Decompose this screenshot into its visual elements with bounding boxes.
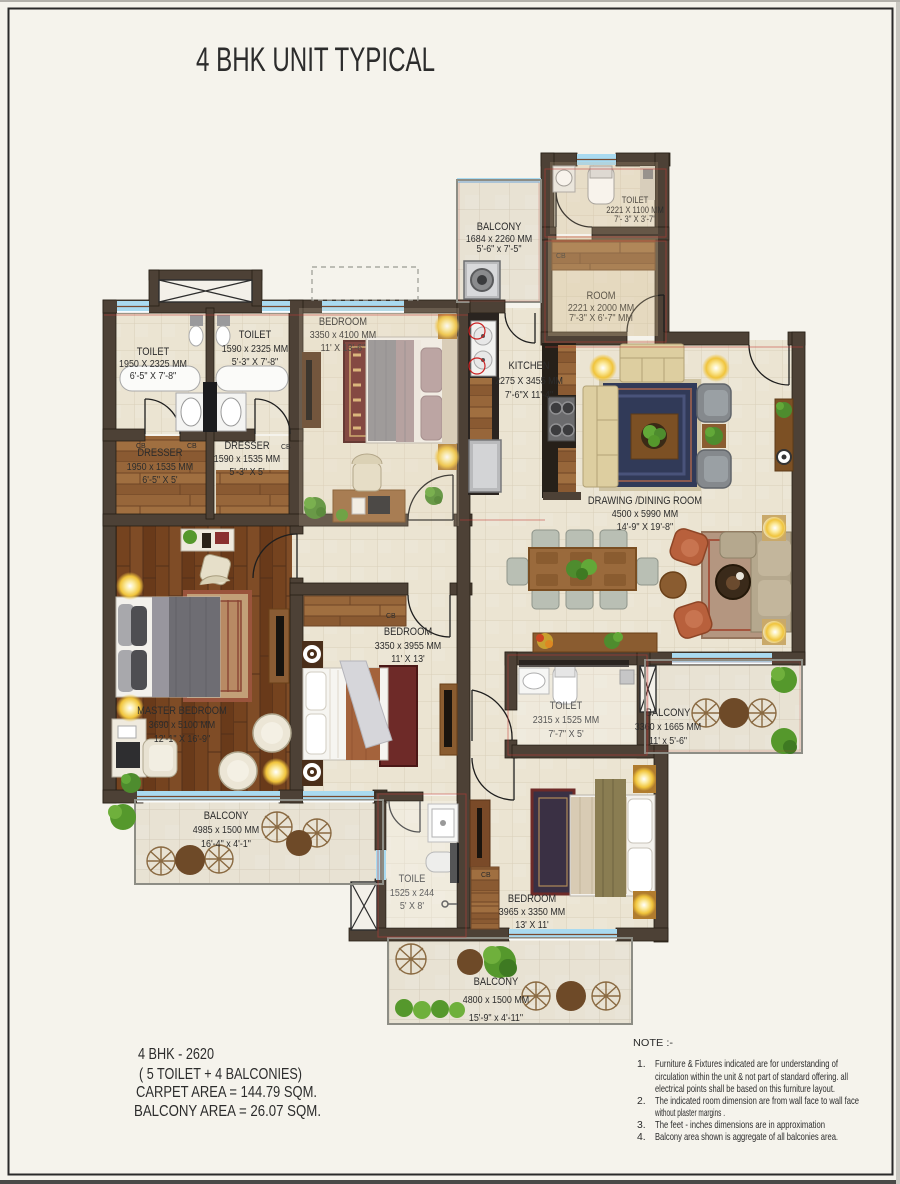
svg-text:The feet - inches dimensions a: The feet - inches dimensions are in appr… [655, 1120, 825, 1131]
svg-text:5'-3" X 7'-8": 5'-3" X 7'-8" [232, 356, 279, 368]
svg-text:14'-9" X 19'-8": 14'-9" X 19'-8" [617, 521, 674, 533]
svg-text:2275 X 3455 MM: 2275 X 3455 MM [495, 375, 563, 387]
svg-text:5'-6" x 7'-5": 5'-6" x 7'-5" [477, 243, 522, 255]
svg-text:4985 x 1500 MM: 4985 x 1500 MM [193, 824, 259, 836]
svg-text:2.: 2. [637, 1096, 646, 1107]
svg-text:1590 x 1535 MM: 1590 x 1535 MM [214, 453, 280, 465]
svg-text:CB: CB [136, 443, 146, 450]
svg-text:16'-4" x 4'-1": 16'-4" x 4'-1" [201, 838, 251, 850]
svg-text:1950 X 2325 MM: 1950 X 2325 MM [119, 358, 187, 370]
svg-text:1.: 1. [637, 1059, 646, 1070]
svg-text:BEDROOM: BEDROOM [384, 626, 432, 638]
svg-text:BALCONY: BALCONY [474, 976, 519, 988]
svg-text:TOILET: TOILET [137, 346, 170, 358]
svg-text:15'-9" x 4'-11": 15'-9" x 4'-11" [469, 1012, 524, 1024]
svg-text:4 BHK UNIT TYPICAL: 4 BHK UNIT TYPICAL [196, 41, 435, 79]
svg-text:Balcony area shown is aggregat: Balcony area shown is aggregate of all b… [655, 1132, 838, 1143]
svg-text:1950 x 1535 MM: 1950 x 1535 MM [127, 461, 193, 473]
svg-text:4500 x 5990 MM: 4500 x 5990 MM [612, 508, 678, 520]
svg-text:CB: CB [386, 613, 396, 620]
svg-text:1590 x 2325 MM: 1590 x 2325 MM [222, 343, 288, 355]
svg-text:CARPET AREA = 144.79 SQM.: CARPET AREA = 144.79 SQM. [136, 1084, 317, 1101]
svg-text:Furniture & Fixtures indicate: Furniture & Fixtures indicated are for u… [655, 1059, 838, 1070]
svg-text:NOTE :-: NOTE :- [633, 1038, 673, 1049]
svg-text:3.: 3. [637, 1120, 646, 1131]
svg-text:The indicated room dimension a: The indicated room dimension are from wa… [655, 1096, 859, 1107]
svg-text:BALCONY: BALCONY [204, 810, 249, 822]
svg-text:3350 x 3955 MM: 3350 x 3955 MM [375, 640, 441, 652]
svg-text:MASTER BEDROOM: MASTER BEDROOM [137, 705, 227, 717]
svg-text:CB: CB [481, 872, 491, 879]
svg-text:6'-5" X 5': 6'-5" X 5' [142, 474, 177, 486]
svg-text:6'-5" X 7'-8": 6'-5" X 7'-8" [130, 370, 177, 382]
svg-text:4800 x 1500 MM: 4800 x 1500 MM [463, 994, 529, 1006]
svg-text:BALCONY: BALCONY [477, 221, 522, 233]
svg-text:3965 x 3350 MM: 3965 x 3350 MM [499, 906, 565, 918]
svg-text:CB: CB [187, 443, 197, 450]
svg-text:electrical points shall be ba: electrical points shall be based on this… [655, 1084, 835, 1095]
svg-text:KITCHEN: KITCHEN [509, 360, 550, 372]
svg-text:( 5 TOILET + 4 BALCONIES): ( 5 TOILET + 4 BALCONIES) [139, 1066, 302, 1083]
svg-text:DRAWING /DINING ROOM: DRAWING /DINING ROOM [588, 495, 702, 507]
svg-text:circulation within the unit &: circulation within the unit & not part o… [655, 1072, 848, 1083]
svg-text:11' X 13': 11' X 13' [391, 653, 425, 665]
svg-text:BALCONY: BALCONY [646, 707, 691, 719]
svg-text:12'-1" X 16'-9": 12'-1" X 16'-9" [154, 733, 211, 745]
svg-text:4.: 4. [637, 1132, 646, 1143]
svg-text:without plaster margins .: without plaster margins . [654, 1108, 725, 1119]
svg-text:7'-6"X 11'-4": 7'-6"X 11'-4" [505, 389, 554, 401]
svg-text:11' x 5'-6": 11' x 5'-6" [649, 735, 688, 747]
svg-text:13' X 11': 13' X 11' [515, 919, 549, 931]
svg-text:DRESSER: DRESSER [224, 440, 269, 452]
svg-text:BALCONY AREA = 26.07 SQM.: BALCONY AREA = 26.07 SQM. [134, 1103, 321, 1120]
svg-text:4 BHK - 2620: 4 BHK - 2620 [138, 1046, 214, 1063]
svg-text:CB: CB [281, 444, 291, 451]
svg-text:BEDROOM: BEDROOM [508, 893, 556, 905]
svg-text:TOILET: TOILET [239, 329, 272, 341]
svg-text:5'-3" X 5': 5'-3" X 5' [229, 466, 264, 478]
svg-text:3360 x 1665 MM: 3360 x 1665 MM [635, 721, 701, 733]
svg-text:3690 x 5100 MM: 3690 x 5100 MM [149, 719, 215, 731]
